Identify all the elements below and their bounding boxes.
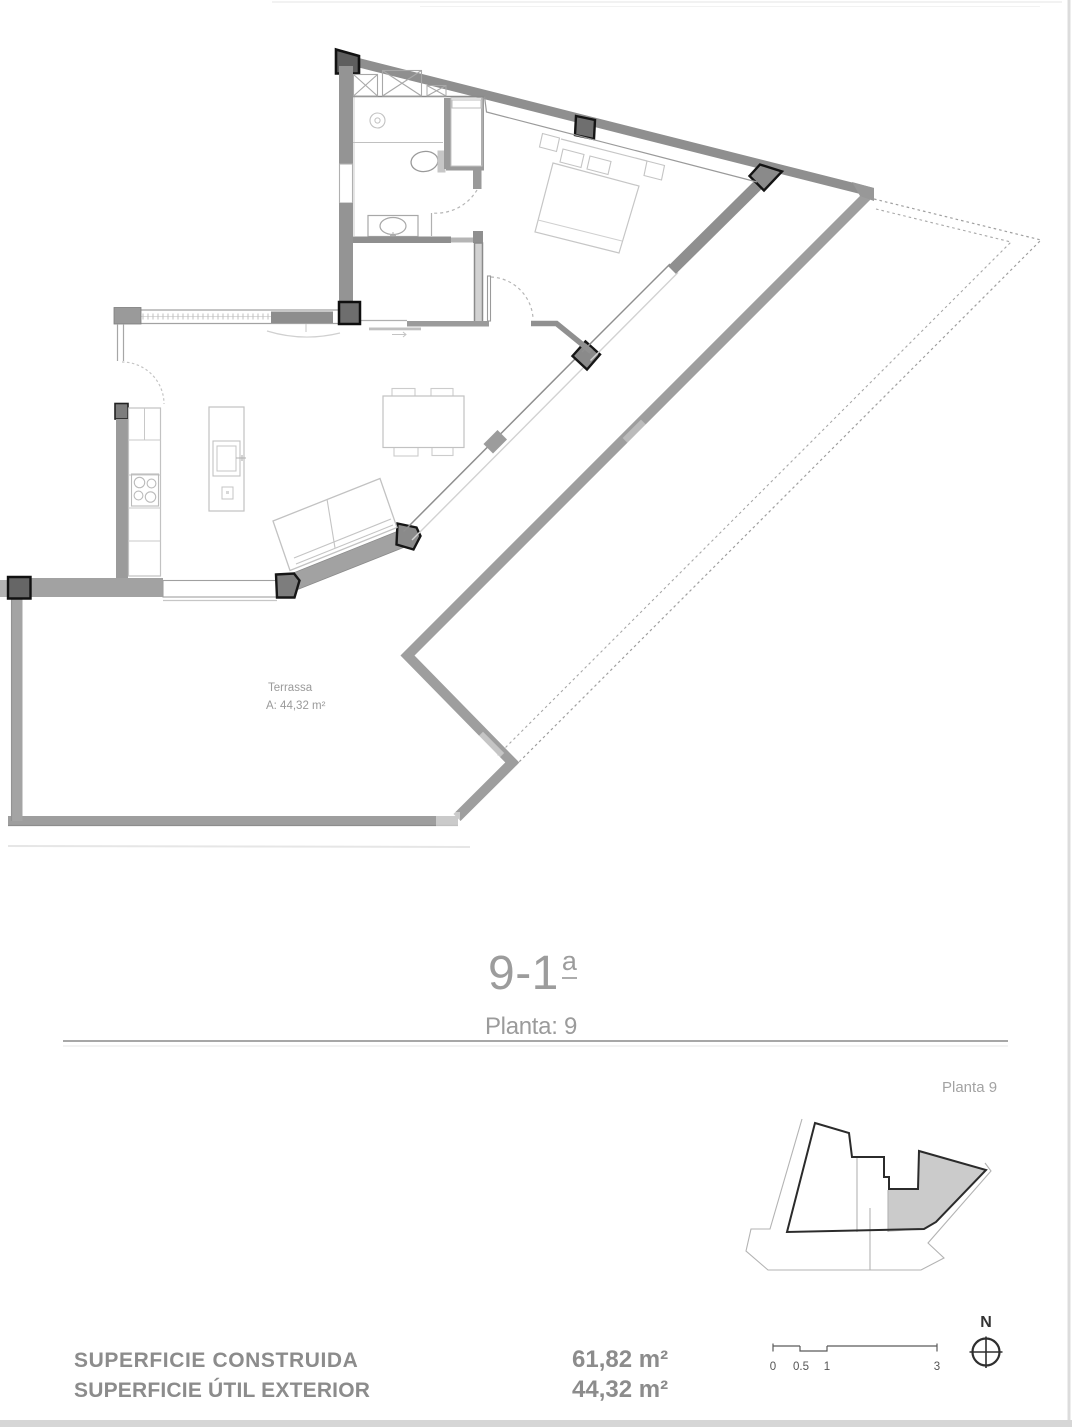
svg-text:0.5: 0.5 <box>793 1361 809 1373</box>
svg-text:44,32 m²: 44,32 m² <box>572 1376 668 1403</box>
svg-text:3: 3 <box>934 1361 940 1373</box>
svg-text:Terrassa: Terrassa <box>268 682 313 694</box>
svg-text:SUPERFICIE CONSTRUIDA: SUPERFICIE CONSTRUIDA <box>74 1349 358 1372</box>
svg-text:61,82 m²: 61,82 m² <box>572 1346 668 1373</box>
svg-text:1: 1 <box>824 1361 830 1373</box>
svg-text:9-1a: 9-1a <box>488 946 578 1000</box>
svg-text:Planta: 9: Planta: 9 <box>485 1013 577 1040</box>
svg-text:N: N <box>980 1314 992 1331</box>
svg-text:A: 44,32 m²: A: 44,32 m² <box>266 700 326 712</box>
svg-text:Planta 9: Planta 9 <box>942 1079 997 1096</box>
svg-text:SUPERFICIE ÚTIL EXTERIOR: SUPERFICIE ÚTIL EXTERIOR <box>74 1378 370 1402</box>
svg-text:0: 0 <box>770 1361 776 1373</box>
